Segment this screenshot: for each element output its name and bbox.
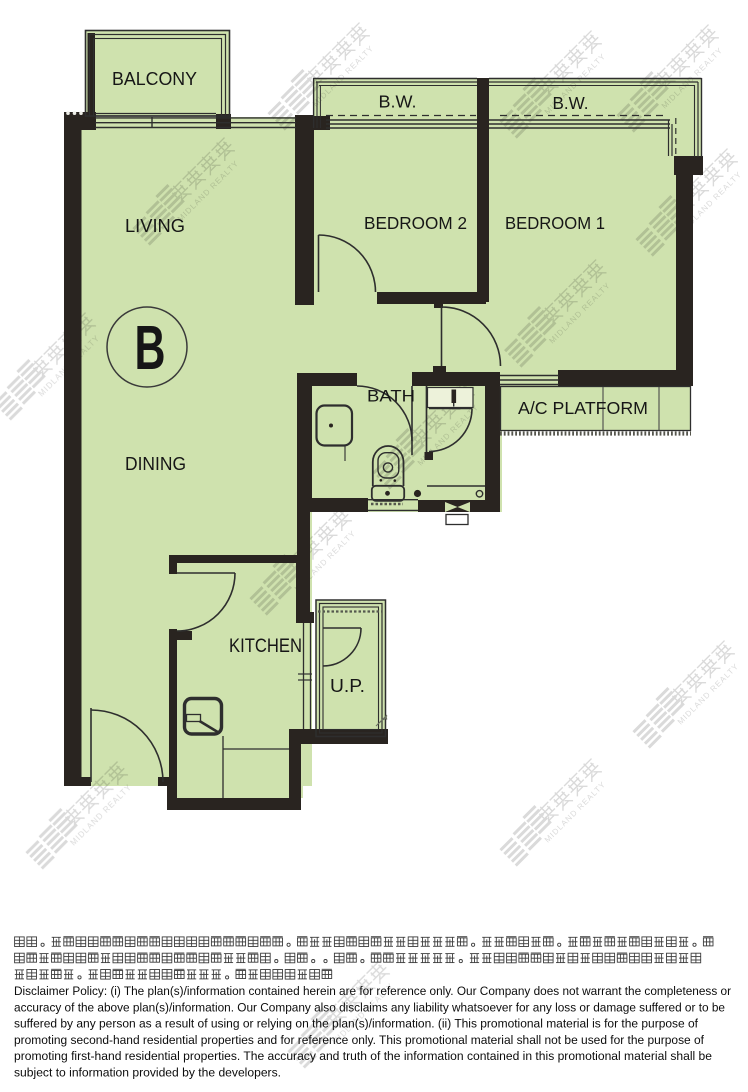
svg-text:KITCHEN: KITCHEN	[229, 636, 302, 657]
svg-text:B.W.: B.W.	[379, 92, 417, 112]
svg-text:suffered by any person as a re: suffered by any person as a result of us…	[14, 1017, 699, 1031]
svg-text:BALCONY: BALCONY	[112, 69, 197, 89]
svg-text:A/C PLATFORM: A/C PLATFORM	[518, 398, 648, 418]
svg-text:promoting second-hand resident: promoting second-hand residential proper…	[14, 1033, 705, 1047]
svg-text:promoting first-hand residenti: promoting first-hand residential propert…	[14, 1049, 712, 1063]
svg-text:subject to information provide: subject to information provided by the d…	[14, 1066, 281, 1080]
svg-text:B.W.: B.W.	[553, 93, 589, 113]
svg-text:DINING: DINING	[125, 454, 186, 474]
svg-text:accuracy of the above plan(s)/: accuracy of the above plan(s)/informatio…	[14, 1000, 725, 1014]
svg-text:BEDROOM 2: BEDROOM 2	[364, 213, 467, 233]
svg-text:BEDROOM 1: BEDROOM 1	[505, 213, 605, 233]
svg-text:Disclaimer Policy: (i) The pla: Disclaimer Policy: (i) The plan(s)/infor…	[14, 984, 731, 998]
svg-text:B: B	[135, 314, 166, 383]
svg-text:U.P.: U.P.	[330, 676, 365, 696]
svg-text:BATH: BATH	[367, 387, 415, 406]
svg-text:LIVING: LIVING	[125, 216, 185, 236]
